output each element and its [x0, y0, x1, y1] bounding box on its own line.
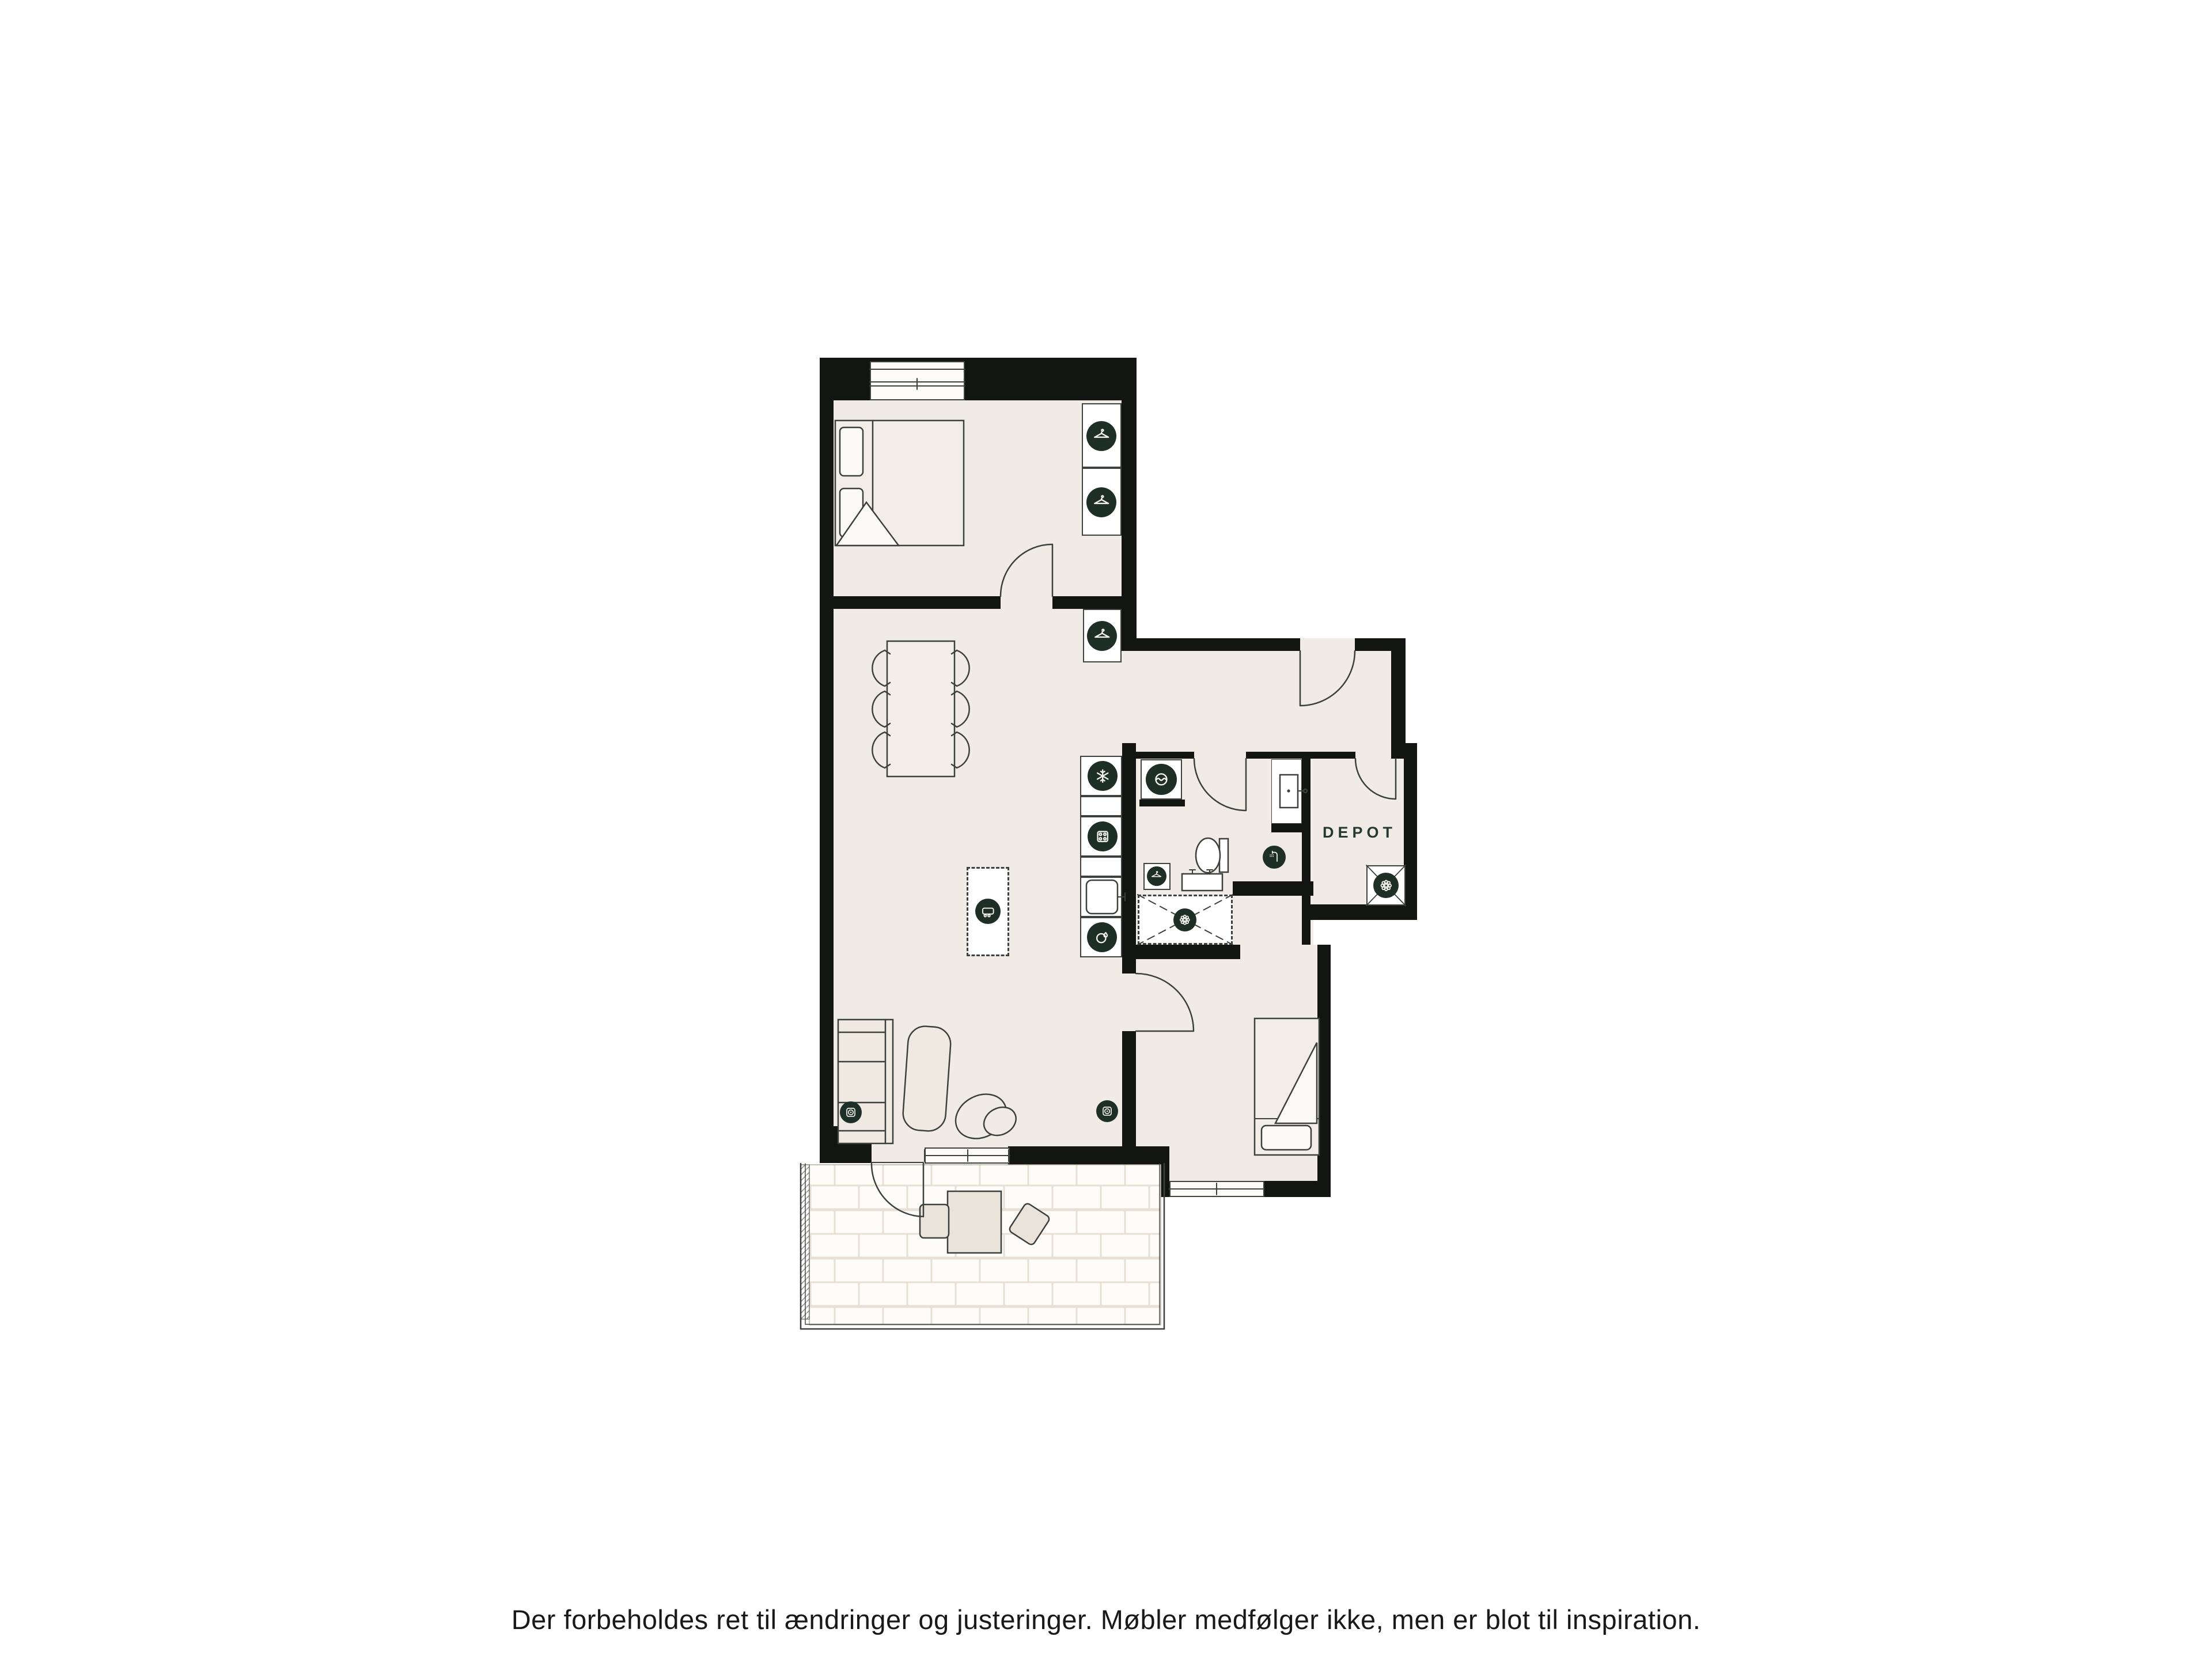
wall: [1308, 904, 1417, 920]
wall: [1122, 945, 1240, 959]
wall: [1317, 945, 1331, 1197]
wall: [1139, 800, 1185, 806]
window-bedroom-1: [870, 361, 965, 400]
wall: [1396, 752, 1404, 759]
disclaimer-text: Der forbeholdes ret til ændringer og jus…: [0, 1604, 2212, 1635]
window-living-room: [925, 1147, 1010, 1164]
wall: [1271, 824, 1302, 832]
floor-door-strip: [1194, 752, 1246, 759]
wall: [1122, 358, 1137, 651]
floor-bedroom-1: [834, 400, 1122, 596]
towel-hanger-icon: [1147, 866, 1166, 886]
floor-door-strip: [1122, 974, 1136, 1031]
wall: [820, 358, 834, 1147]
depot-room-label: DEPOT: [1319, 824, 1400, 842]
floor-drain-icon: [1173, 908, 1196, 931]
floor-door-strip: [1001, 596, 1052, 609]
dishwasher-icon: [1087, 922, 1117, 952]
ventilation-icon: [1373, 873, 1399, 898]
wall: [1008, 1146, 1169, 1197]
kitchen-cabinet: [1080, 857, 1122, 877]
power-socket-icon: [840, 1101, 862, 1123]
wall: [1391, 638, 1406, 759]
wall: [820, 358, 1137, 400]
wall: [1137, 638, 1300, 651]
kitchen-cabinet: [1080, 796, 1122, 816]
wall: [820, 596, 1001, 609]
wardrobe-hanger-icon: [1087, 621, 1117, 651]
wall: [1302, 752, 1310, 945]
wall: [1310, 752, 1355, 759]
wall: [1122, 1031, 1136, 1197]
power-socket-icon: [1096, 1100, 1118, 1122]
floor-hallway: [1137, 651, 1391, 753]
wall: [1233, 881, 1313, 896]
wall: [820, 1126, 872, 1163]
wardrobe-hanger-icon: [1086, 487, 1116, 517]
wardrobe-hanger-icon: [1086, 421, 1116, 451]
window-bedroom-2: [1169, 1181, 1264, 1197]
floor-balcony-doorway: [871, 1147, 925, 1164]
kitchen-cabinet-sink: [1080, 877, 1122, 917]
shower-icon: [1263, 846, 1286, 869]
floor-entry-opening: [1300, 638, 1355, 651]
wall: [1136, 752, 1194, 759]
hob-icon: [1088, 821, 1118, 851]
wall: [1122, 959, 1136, 974]
floor-plan-page: DEPOT Der forbeholdes ret til ændringer …: [0, 0, 2212, 1659]
wall: [1404, 743, 1417, 920]
kitchen-island-icon: [975, 899, 1001, 924]
wall: [1122, 743, 1136, 945]
washing-machine-icon: [1146, 764, 1177, 795]
floor-door-strip: [1355, 752, 1396, 759]
floor-bedroom-2: [1136, 945, 1331, 1181]
freezer-icon: [1088, 761, 1118, 791]
vanity-niche: [1271, 759, 1302, 824]
